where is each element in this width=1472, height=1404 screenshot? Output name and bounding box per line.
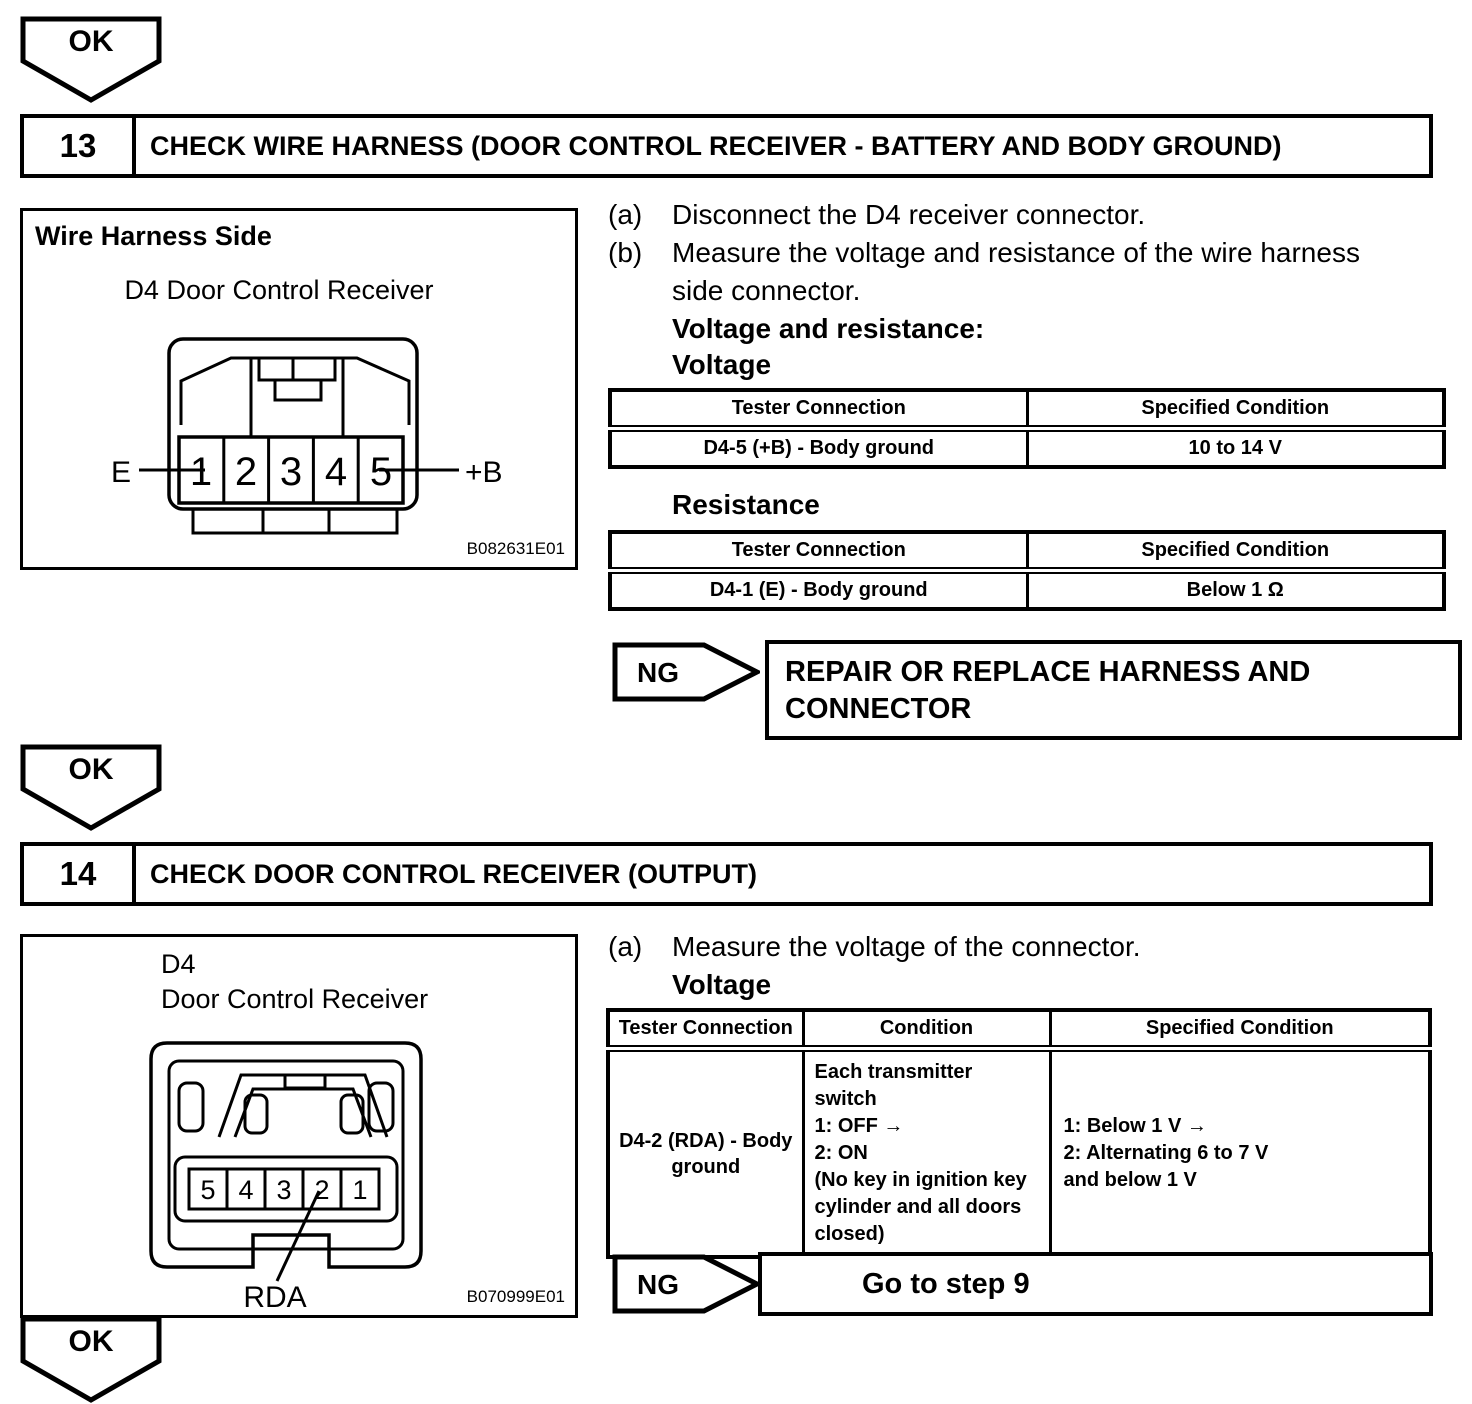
ng-badge-label: NG [637,657,679,688]
ok-badge-label: OK [69,25,114,58]
resistance-table-step13: Tester Connection Specified Condition D4… [608,530,1446,611]
pin-label-e: E [111,456,131,489]
latch-ear [341,1095,363,1133]
col-header-specified-condition: Specified Condition [1050,1010,1430,1049]
table-row: D4-1 (E) - Body ground Below 1 Ω [610,571,1444,610]
condition-line: (No key in ignition key cylinder and all… [815,1167,1039,1248]
ng-action-box-repair: REPAIR OR REPLACE HARNESS AND CONNECTOR [765,640,1462,740]
col-header-condition: Condition [803,1010,1050,1049]
col-header-tester-connection: Tester Connection [610,532,1027,571]
ok-flow-badge-3: OK [20,1316,162,1404]
specified-line: 1: Below 1 V → [1064,1113,1279,1140]
pin-number: 5 [370,450,392,494]
instruction-text: Measure the voltage of the connector. [672,928,1382,966]
spec-heading: Voltage and resistance: [672,310,984,348]
tester-connection-cell: D4-5 (+B) - Body ground [610,429,1027,468]
tester-connection-cell: D4-2 (RDA) - Body ground [608,1049,803,1258]
connector-recess [181,358,409,425]
instruction-text: Measure the voltage and resistance of th… [672,234,1382,310]
instruction-index: (b) [608,234,642,272]
resistance-heading: Resistance [672,486,820,524]
ng-badge-label: NG [637,1269,679,1300]
voltage-table-step13: Tester Connection Specified Condition D4… [608,388,1446,469]
figure-code: B070999E01 [467,1287,565,1307]
voltage-heading-13: Voltage [672,346,771,384]
connector-latch-tower [251,358,343,437]
instruction-text: Disconnect the D4 receiver connector. [672,196,1382,234]
figure-code: B082631E01 [467,539,565,559]
tester-connection-cell: D4-1 (E) - Body ground [610,571,1027,610]
col-header-tester-connection: Tester Connection [610,390,1027,429]
ng-action-box-goto: Go to step 9 [758,1252,1433,1316]
ok-flow-badge-1: OK [20,16,162,104]
pin-number: 1 [352,1175,367,1205]
latch-detail [259,358,293,380]
pin-number: 3 [280,450,302,494]
voltage-table-step14: Tester Connection Condition Specified Co… [606,1008,1432,1259]
condition-line: 1: OFF → [815,1113,1039,1140]
step13-header: 13 CHECK WIRE HARNESS (DOOR CONTROL RECE… [20,114,1433,178]
pin-number: 4 [325,450,347,494]
step13-number: 13 [24,118,136,174]
pin-number: 1 [190,450,212,494]
instruction-index: (a) [608,196,642,234]
wire-harness-panel: Wire Harness Side D4 Door Control Receiv… [20,208,578,570]
ok-badge-label: OK [69,753,114,786]
receiver-panel: D4 Door Control Receiver 5 4 3 2 1 R [20,934,578,1318]
ok-badge-label: OK [69,1325,114,1358]
instruction-index: (a) [608,928,642,966]
connector-ear [179,1083,203,1131]
pin-number: 3 [276,1175,291,1205]
service-manual-page: OK 13 CHECK WIRE HARNESS (DOOR CONTROL R… [0,0,1472,1404]
condition-line: 2: ON [815,1140,1039,1167]
specified-condition-cell: 1: Below 1 V → 2: Alternating 6 to 7 V a… [1050,1049,1430,1258]
pin-number: 5 [200,1175,215,1205]
pin-number: 2 [235,450,257,494]
latch-detail [293,358,335,380]
table-row: D4-5 (+B) - Body ground 10 to 14 V [610,429,1444,468]
step14-title: CHECK DOOR CONTROL RECEIVER (OUTPUT) [136,846,1429,902]
ng-flow-badge-2: NG [612,1254,760,1314]
connector-diagram-1: 1 2 3 4 5 E +B [23,211,575,567]
table-row: D4-2 (RDA) - Body ground Each transmitte… [608,1049,1430,1258]
voltage-heading-14: Voltage [672,966,771,1004]
ng-flow-badge-1: NG [612,642,760,702]
specified-condition-cell: 10 to 14 V [1027,429,1444,468]
col-header-specified-condition: Specified Condition [1027,390,1444,429]
specified-line: 2: Alternating 6 to 7 V and below 1 V [1064,1140,1279,1194]
ok-flow-badge-2: OK [20,744,162,832]
instruction-13a: (a) Disconnect the D4 receiver connector… [608,196,1432,234]
instruction-13b: (b) Measure the voltage and resistance o… [608,234,1432,310]
step13-title: CHECK WIRE HARNESS (DOOR CONTROL RECEIVE… [136,118,1429,174]
step14-number: 14 [24,846,136,902]
connector-bottom-tab [193,509,397,533]
col-header-tester-connection: Tester Connection [608,1010,803,1049]
specified-condition-cell: Below 1 Ω [1027,571,1444,610]
condition-line: Each transmitter switch [815,1059,1039,1113]
pin-number: 2 [314,1175,329,1205]
col-header-specified-condition: Specified Condition [1027,532,1444,571]
condition-cell: Each transmitter switch 1: OFF → 2: ON (… [803,1049,1050,1258]
instruction-14a: (a) Measure the voltage of the connector… [608,928,1432,966]
latch-detail [275,380,321,400]
latch-detail [285,1075,325,1088]
pin-label-rda: RDA [243,1281,306,1309]
step14-header: 14 CHECK DOOR CONTROL RECEIVER (OUTPUT) [20,842,1433,906]
pin-label-plus-b: +B [465,456,503,489]
pin-number: 4 [238,1175,253,1205]
connector-diagram-2: 5 4 3 2 1 RDA [23,937,575,1309]
